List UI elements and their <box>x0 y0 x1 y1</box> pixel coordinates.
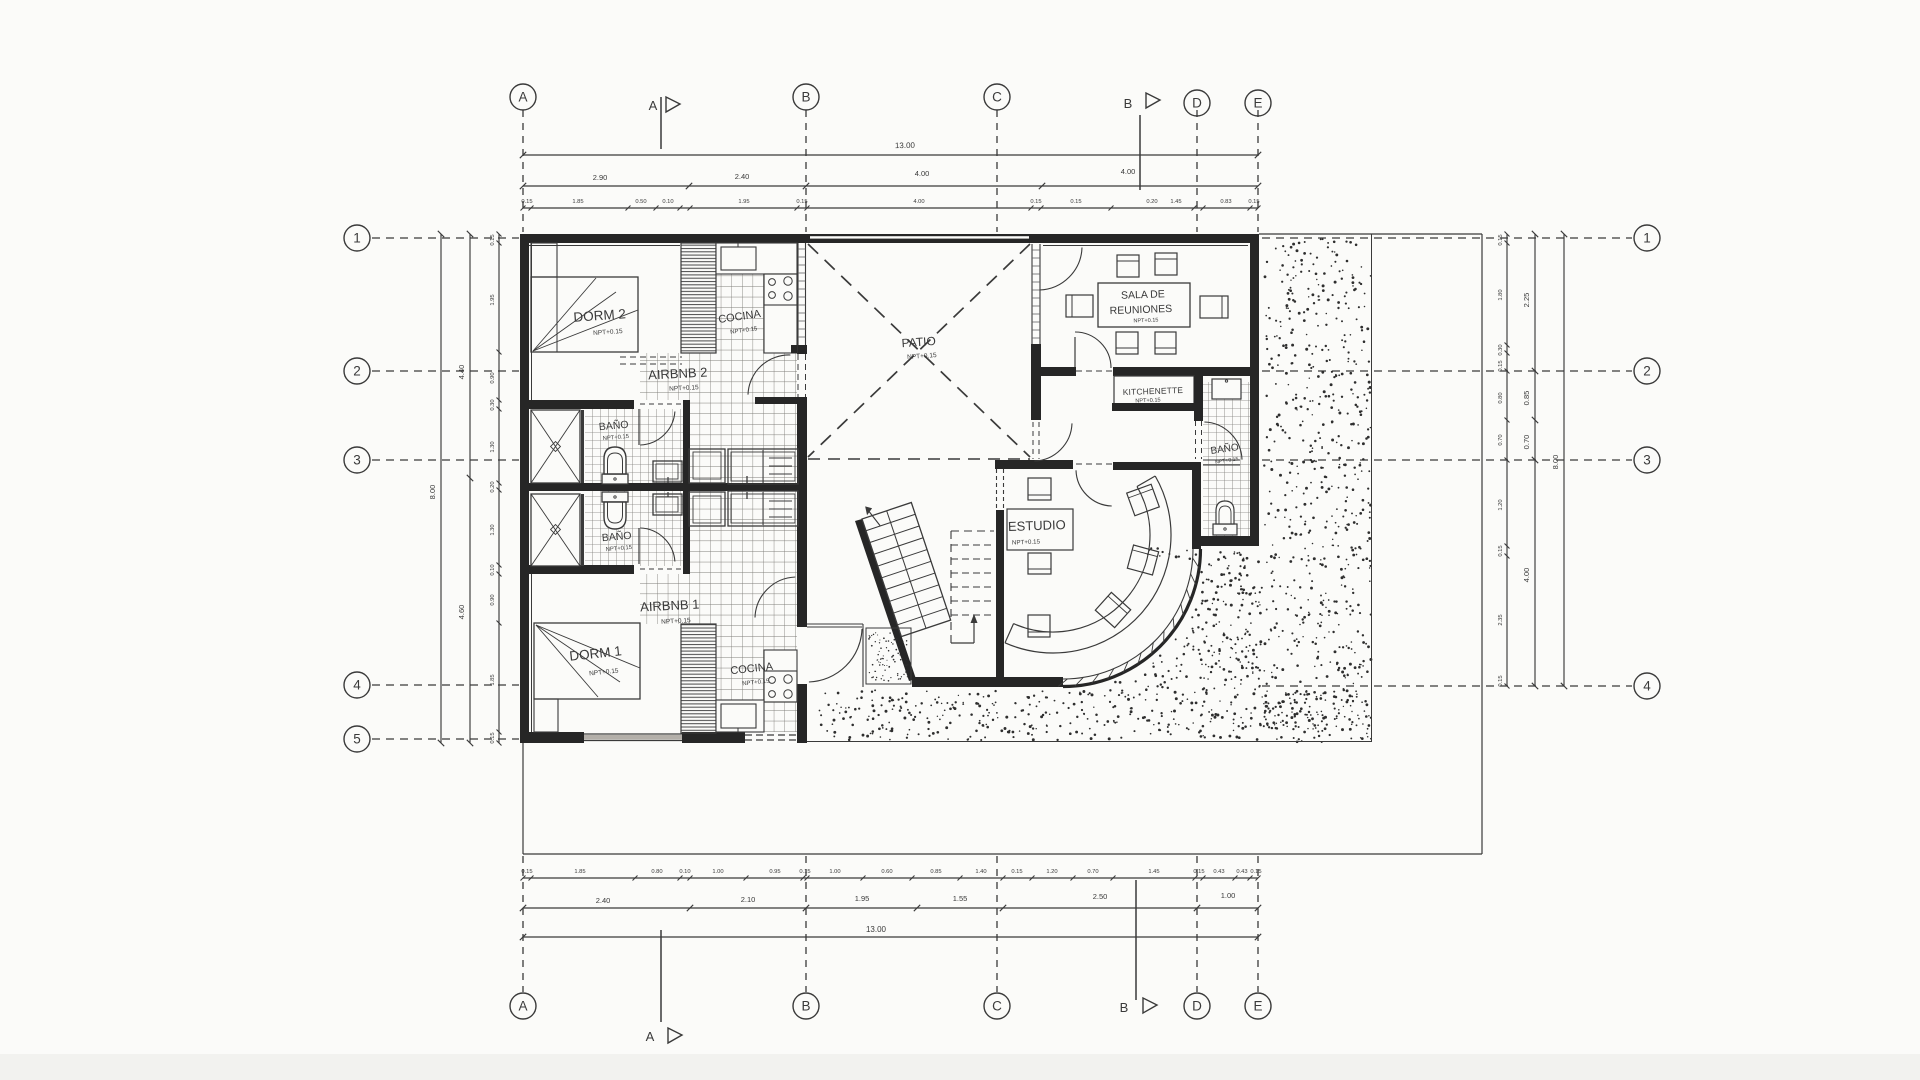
svg-text:0.85: 0.85 <box>930 869 941 875</box>
svg-text:0.80: 0.80 <box>651 869 662 875</box>
svg-text:0.10: 0.10 <box>679 869 690 875</box>
svg-text:A: A <box>518 999 527 1014</box>
svg-text:1: 1 <box>1643 231 1651 246</box>
svg-text:0.20: 0.20 <box>1146 199 1157 205</box>
svg-text:2.90: 2.90 <box>593 173 608 182</box>
svg-text:0.15: 0.15 <box>1498 545 1504 556</box>
svg-text:4.00: 4.00 <box>1522 568 1531 583</box>
svg-text:1.95: 1.95 <box>855 894 870 903</box>
svg-text:0.80: 0.80 <box>1498 392 1504 403</box>
svg-text:0.20: 0.20 <box>490 481 496 492</box>
svg-text:E: E <box>1253 999 1262 1014</box>
svg-text:B: B <box>1120 1000 1129 1015</box>
svg-text:B: B <box>801 999 810 1014</box>
svg-text:0.10: 0.10 <box>662 199 673 205</box>
svg-text:B: B <box>1124 96 1133 111</box>
svg-text:1.20: 1.20 <box>1498 499 1504 510</box>
svg-text:1.85: 1.85 <box>574 869 585 875</box>
svg-text:C: C <box>992 90 1002 105</box>
svg-text:0.30: 0.30 <box>1498 344 1504 355</box>
svg-text:2.40: 2.40 <box>735 172 750 181</box>
svg-text:0.15: 0.15 <box>1030 199 1041 205</box>
svg-text:REUNIONES: REUNIONES <box>1109 303 1172 317</box>
svg-text:4: 4 <box>353 678 361 693</box>
svg-text:0.15: 0.15 <box>521 869 532 875</box>
svg-text:1.00: 1.00 <box>712 869 723 875</box>
svg-text:0.15: 0.15 <box>490 234 496 245</box>
svg-text:E: E <box>1253 96 1262 111</box>
svg-text:1.85: 1.85 <box>490 674 496 685</box>
svg-text:3: 3 <box>353 453 361 468</box>
svg-text:2.25: 2.25 <box>1522 293 1531 308</box>
svg-text:4.60: 4.60 <box>457 605 466 620</box>
svg-text:1.85: 1.85 <box>572 199 583 205</box>
svg-text:1.30: 1.30 <box>490 524 496 535</box>
svg-text:5: 5 <box>353 732 361 747</box>
svg-text:0.15: 0.15 <box>1070 199 1081 205</box>
svg-text:0.50: 0.50 <box>635 199 646 205</box>
svg-text:13.00: 13.00 <box>866 925 887 934</box>
svg-text:0.30: 0.30 <box>490 399 496 410</box>
svg-text:2.40: 2.40 <box>596 896 611 905</box>
svg-text:0.43: 0.43 <box>1236 869 1247 875</box>
svg-text:4.00: 4.00 <box>913 199 924 205</box>
svg-text:AIRBNB 2: AIRBNB 2 <box>648 364 708 382</box>
svg-text:D: D <box>1192 999 1202 1014</box>
svg-text:1.30: 1.30 <box>490 441 496 452</box>
svg-text:4: 4 <box>1643 679 1651 694</box>
svg-text:0.15: 0.15 <box>1498 360 1504 371</box>
svg-text:NPT+0.15: NPT+0.15 <box>1135 398 1161 405</box>
svg-text:1.95: 1.95 <box>490 294 496 305</box>
svg-text:B: B <box>801 90 810 105</box>
svg-text:0.15: 0.15 <box>490 732 496 743</box>
svg-text:1.55: 1.55 <box>953 894 968 903</box>
svg-text:2: 2 <box>1643 364 1651 379</box>
svg-text:8.00: 8.00 <box>1551 455 1560 470</box>
svg-text:2: 2 <box>353 364 361 379</box>
svg-text:0.15: 0.15 <box>1498 234 1504 245</box>
svg-text:A: A <box>518 90 527 105</box>
svg-text:0.15: 0.15 <box>1248 199 1259 205</box>
svg-text:C: C <box>992 999 1002 1014</box>
svg-text:0.83: 0.83 <box>1220 199 1231 205</box>
svg-text:3: 3 <box>1643 453 1651 468</box>
svg-text:8.00: 8.00 <box>428 485 437 500</box>
svg-text:1.40: 1.40 <box>975 869 986 875</box>
svg-text:0.70: 0.70 <box>1498 434 1504 445</box>
svg-text:ESTUDIO: ESTUDIO <box>1008 517 1066 534</box>
svg-text:KITCHENETTE: KITCHENETTE <box>1123 385 1184 397</box>
svg-text:1.20: 1.20 <box>1046 869 1057 875</box>
svg-text:0.15: 0.15 <box>521 199 532 205</box>
svg-text:D: D <box>1192 96 1202 111</box>
svg-text:A: A <box>649 98 658 113</box>
svg-text:0.15: 0.15 <box>799 869 810 875</box>
svg-text:1: 1 <box>353 231 361 246</box>
svg-text:4.00: 4.00 <box>915 169 930 178</box>
svg-text:BAÑO: BAÑO <box>598 418 629 434</box>
svg-text:NPT+0.15: NPT+0.15 <box>1133 318 1158 325</box>
svg-text:2.35: 2.35 <box>1498 614 1504 625</box>
svg-text:BAÑO: BAÑO <box>601 529 632 545</box>
svg-text:0.70: 0.70 <box>1087 869 1098 875</box>
svg-text:0.60: 0.60 <box>881 869 892 875</box>
svg-text:1.95: 1.95 <box>738 199 749 205</box>
svg-text:1.45: 1.45 <box>1170 199 1181 205</box>
svg-text:0.70: 0.70 <box>1522 435 1531 450</box>
svg-text:0.95: 0.95 <box>769 869 780 875</box>
svg-text:0.43: 0.43 <box>1213 869 1224 875</box>
svg-text:1.00: 1.00 <box>1221 891 1236 900</box>
svg-text:0.90: 0.90 <box>490 372 496 383</box>
svg-text:PATIO: PATIO <box>901 334 936 350</box>
svg-text:0.15: 0.15 <box>796 199 807 205</box>
svg-text:2.50: 2.50 <box>1093 892 1108 901</box>
svg-text:SALA DE: SALA DE <box>1121 288 1165 302</box>
svg-text:1.45: 1.45 <box>1148 869 1159 875</box>
svg-text:2.10: 2.10 <box>741 895 756 904</box>
svg-text:0.15: 0.15 <box>1498 675 1504 686</box>
svg-text:0.15: 0.15 <box>1193 869 1204 875</box>
svg-text:0.15: 0.15 <box>1011 869 1022 875</box>
svg-text:1.00: 1.00 <box>829 869 840 875</box>
svg-text:AIRBNB 1: AIRBNB 1 <box>640 596 700 614</box>
svg-text:A: A <box>646 1029 655 1044</box>
svg-text:4.40: 4.40 <box>457 365 466 380</box>
svg-text:0.15: 0.15 <box>1250 869 1261 875</box>
svg-text:0.10: 0.10 <box>490 564 496 575</box>
svg-text:NPT+0.15: NPT+0.15 <box>1012 538 1041 546</box>
svg-text:0.90: 0.90 <box>490 594 496 605</box>
svg-text:13.00: 13.00 <box>895 141 916 150</box>
svg-text:1.80: 1.80 <box>1498 289 1504 300</box>
svg-text:4.00: 4.00 <box>1121 167 1136 176</box>
svg-text:0.85: 0.85 <box>1522 391 1531 406</box>
